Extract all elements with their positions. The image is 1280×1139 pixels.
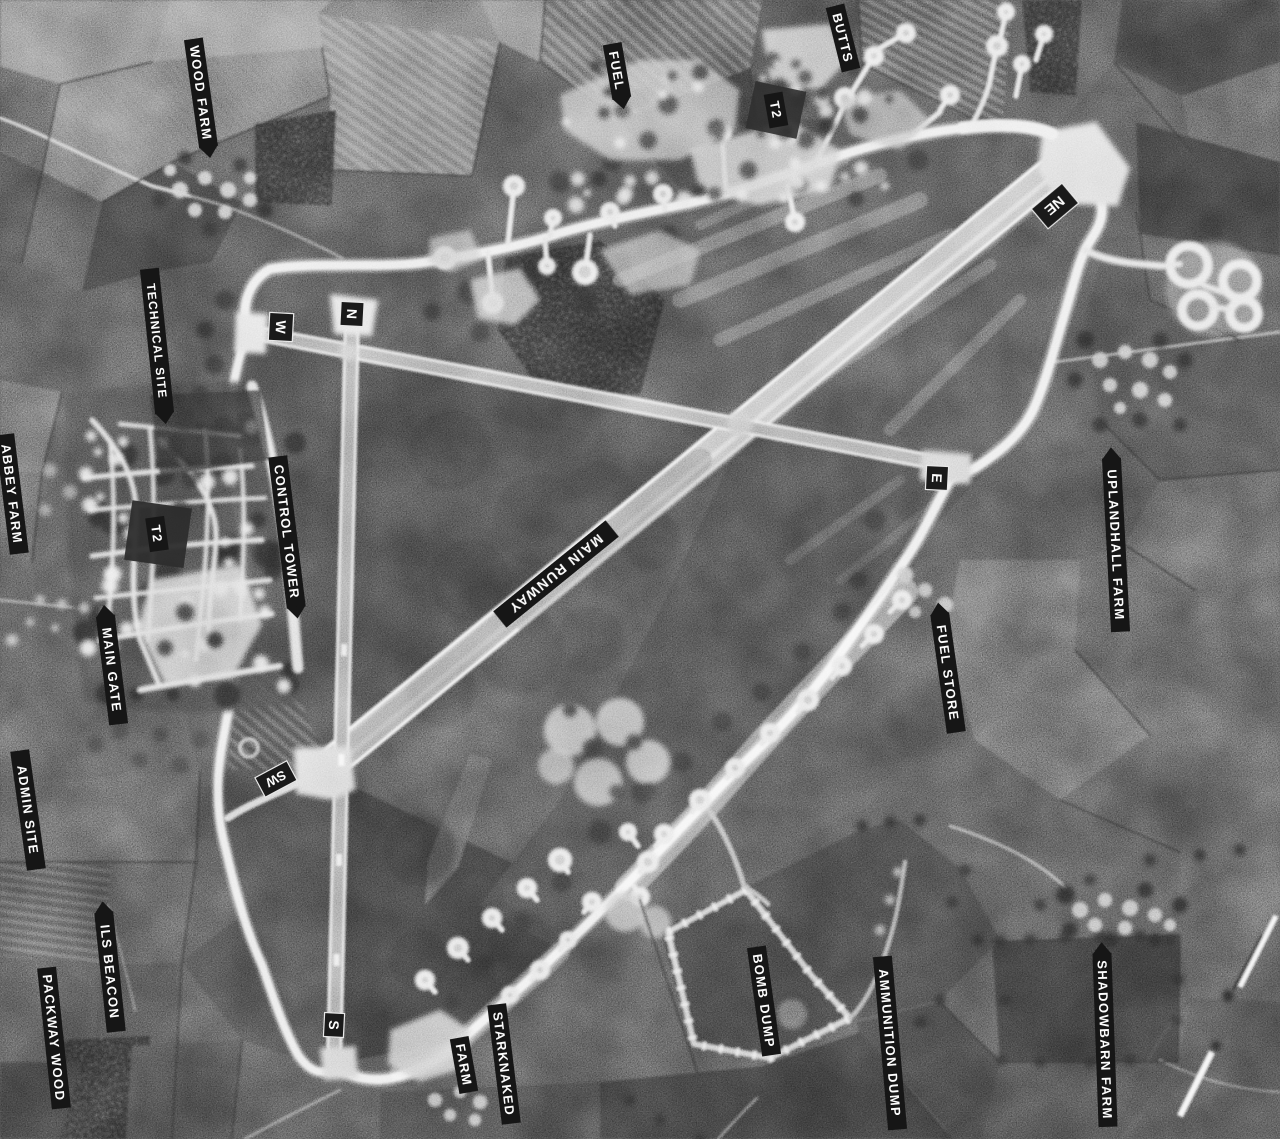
svg-text:E: E [929, 473, 945, 483]
svg-text:T2: T2 [767, 100, 785, 121]
svg-text:S: S [326, 1020, 342, 1030]
svg-text:T2: T2 [148, 524, 165, 544]
svg-text:W: W [273, 320, 290, 335]
svg-text:N: N [344, 309, 361, 320]
